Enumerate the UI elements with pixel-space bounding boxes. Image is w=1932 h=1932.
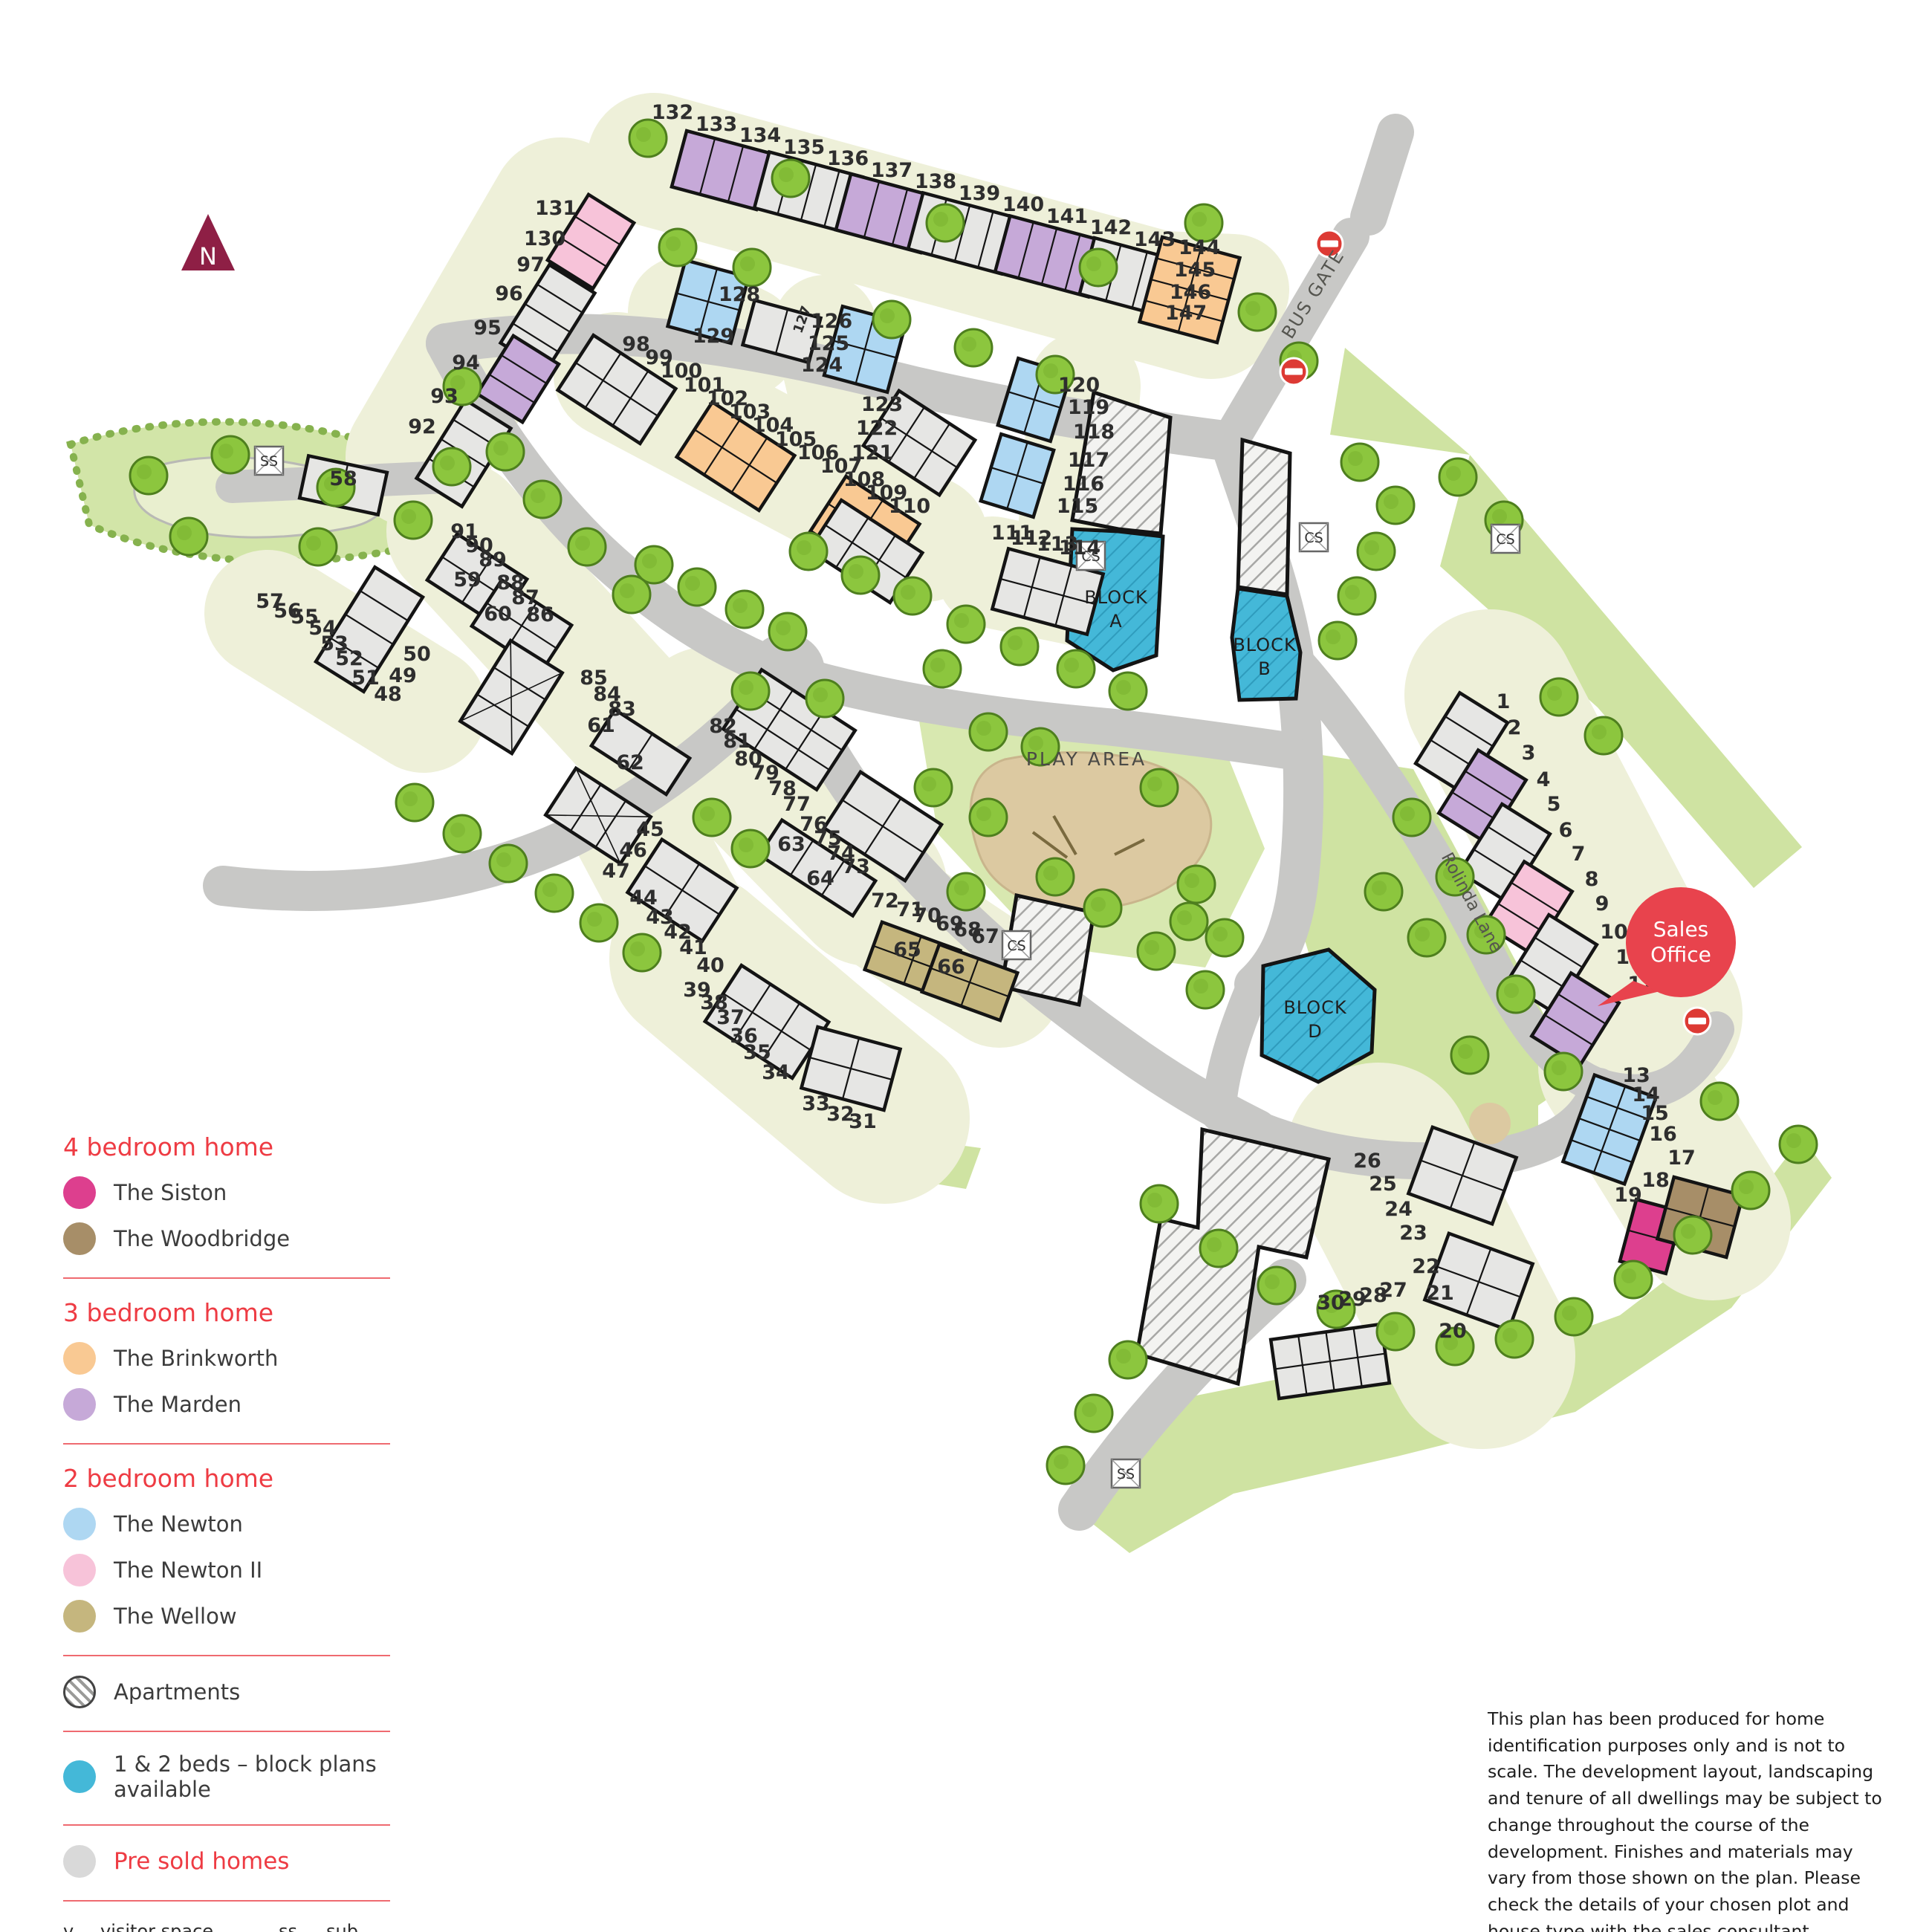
tree-icon (1547, 686, 1562, 701)
tree-icon (954, 613, 969, 628)
plot-number: 139 (959, 182, 1000, 205)
plot-number: 7 (1572, 843, 1586, 866)
legend-item-label: The Woodbridge (114, 1226, 290, 1251)
legend-swatch-icon (63, 1600, 96, 1633)
tree-icon (1082, 1402, 1097, 1417)
tree-icon (531, 488, 545, 503)
plot-number: 118 (1073, 421, 1115, 444)
plot-number: 126 (811, 310, 852, 333)
tree-icon (933, 212, 948, 227)
legend-divider (63, 1824, 390, 1826)
tree-icon (921, 777, 936, 791)
plot-number: 22 (1412, 1255, 1440, 1278)
legend-divider (63, 1443, 390, 1445)
plot-number: 17 (1667, 1147, 1696, 1170)
tree-icon (1008, 635, 1022, 650)
tree-icon (1592, 724, 1607, 739)
tree-icon (642, 554, 657, 568)
tree-icon (1207, 1237, 1222, 1252)
plot-number: 117 (1068, 449, 1109, 472)
plot-number: 34 (762, 1061, 790, 1084)
legend-item: The Wellow (63, 1600, 390, 1633)
tree-icon (1415, 927, 1430, 941)
tree-icon (1384, 494, 1398, 509)
plot-number: 145 (1174, 259, 1216, 282)
plot-number: 46 (619, 839, 647, 862)
plot-number: 64 (806, 867, 834, 890)
svg-text:SS: SS (1117, 1466, 1135, 1482)
disclaimer-text: This plan has been produced for home ide… (1488, 1706, 1884, 1932)
plot-number: 124 (801, 354, 843, 377)
legend-swatch-icon (63, 1845, 96, 1878)
plot-number: 140 (1002, 193, 1044, 216)
play-area-surface (1469, 1103, 1511, 1144)
tree-icon (1147, 1193, 1162, 1207)
cycle-store-marker: CS (1002, 931, 1031, 959)
block-label: BLOCK (1084, 587, 1148, 608)
legend-swatch-icon (63, 1222, 96, 1255)
tree-icon (1144, 940, 1159, 955)
svg-text:Sales: Sales (1653, 917, 1709, 941)
road (1369, 132, 1395, 217)
tree-icon (1372, 881, 1387, 895)
tree-icon (880, 308, 895, 323)
svg-text:CS: CS (1496, 531, 1514, 548)
plot-number: 21 (1426, 1282, 1454, 1305)
svg-text:CS: CS (1007, 938, 1025, 954)
block-label: BLOCK (1283, 997, 1347, 1018)
tree-icon (1054, 1454, 1069, 1469)
plot-number: 1 (1497, 690, 1511, 713)
plot-number: 15 (1641, 1102, 1669, 1125)
block-label: D (1308, 1021, 1322, 1042)
tree-icon (1681, 1224, 1696, 1239)
plot-number: 132 (652, 101, 693, 124)
plot-number: 115 (1057, 495, 1098, 518)
tree-icon (575, 536, 590, 551)
plot-number: 146 (1170, 281, 1211, 304)
plot-number: 136 (827, 147, 869, 170)
plot-number: 5 (1547, 793, 1561, 816)
plot-number: 72 (871, 889, 899, 912)
legend-swatch-icon (63, 1388, 96, 1421)
block-label: BLOCK (1233, 635, 1297, 655)
tree-icon (1384, 1320, 1398, 1335)
plot-number: 131 (535, 197, 577, 220)
tree-icon (1043, 866, 1058, 881)
tree-icon (1503, 1328, 1517, 1343)
tree-icon (1147, 777, 1162, 791)
tree-icon (962, 337, 976, 351)
tree-icon (496, 852, 511, 867)
plot-number: 92 (408, 415, 436, 438)
tree-icon (976, 721, 991, 736)
site-plan-page: CSCSCSCSSSSS BLOCKABLOCKBBLOCKD123456789… (0, 0, 1932, 1932)
plot-number: 94 (452, 351, 480, 375)
legend-item-apartments: Apartments (63, 1676, 390, 1708)
legend-item-label: The Marden (114, 1392, 241, 1417)
plot-number: 20 (1439, 1320, 1467, 1343)
tree-icon (1043, 363, 1058, 378)
plot-number: 45 (636, 818, 664, 841)
plot-number: 6 (1559, 819, 1573, 842)
plot-number: 143 (1134, 228, 1176, 251)
legend-divider (63, 1731, 390, 1732)
legend-section-heading: 4 bedroom home (63, 1132, 390, 1161)
plot-number: 134 (739, 124, 781, 147)
legend-abbr-cell: v (63, 1921, 100, 1932)
tree-icon (1364, 540, 1379, 555)
tree-icon (306, 536, 321, 551)
tree-icon (440, 456, 455, 470)
tree-icon (779, 167, 794, 182)
tree-icon (1326, 629, 1341, 644)
tree-icon (137, 464, 152, 479)
legend-section-heading: 2 bedroom home (63, 1464, 390, 1493)
plot-number: 47 (602, 860, 630, 883)
legend-abbr-cell: sub station (326, 1921, 390, 1932)
plot-number: 2 (1508, 716, 1522, 739)
plot-number: 130 (524, 227, 565, 250)
tree-icon (733, 598, 748, 613)
tree-icon (542, 882, 557, 897)
tree-icon (739, 680, 753, 695)
plot-number: 26 (1353, 1150, 1381, 1173)
tree-icon (1446, 466, 1461, 481)
plot-number: 3 (1522, 742, 1536, 765)
svg-text:CS: CS (1304, 530, 1323, 546)
legend-item: The Brinkworth (63, 1342, 390, 1375)
plot-number: 128 (719, 283, 760, 306)
cycle-store-marker: CS (1491, 525, 1520, 553)
plot-number: 123 (861, 393, 903, 416)
plot-number: 25 (1369, 1173, 1397, 1196)
legend-item: The Newton II (63, 1554, 390, 1586)
legend-item-label: The Siston (114, 1180, 227, 1205)
tree-icon (620, 583, 635, 598)
tree-icon (1504, 983, 1519, 998)
tree-icon (218, 444, 233, 458)
north-label: N (199, 242, 217, 270)
plot-number: 19 (1614, 1184, 1642, 1207)
plot-number: 93 (430, 385, 458, 408)
plot-number: 135 (783, 136, 825, 159)
tree-icon (813, 687, 828, 702)
plot-number: 142 (1090, 216, 1132, 239)
legend-swatch-icon (63, 1554, 96, 1586)
tree-icon (1345, 585, 1360, 600)
plot-number: 50 (403, 643, 431, 666)
legend-swatch-icon (63, 1176, 96, 1209)
tree-icon (1458, 1044, 1473, 1059)
tree-icon (403, 791, 418, 806)
plot-number: 95 (473, 317, 502, 340)
plot-number: 57 (256, 590, 284, 613)
plot-number: 144 (1179, 236, 1220, 259)
legend-swatch-icon (63, 1342, 96, 1375)
legend-item: The Marden (63, 1388, 390, 1421)
plot-number: 23 (1399, 1222, 1427, 1245)
plot-number: 62 (616, 751, 644, 774)
plot-number: 120 (1058, 374, 1100, 397)
legend-item-label: The Wellow (114, 1604, 237, 1629)
no-entry-icon (1280, 358, 1307, 385)
legend-item: The Siston (63, 1176, 390, 1209)
north-arrow: N (181, 214, 235, 270)
tree-icon (1400, 806, 1415, 821)
tree-icon (849, 564, 863, 579)
svg-text:SS: SS (260, 453, 278, 470)
legend-item: The Newton (63, 1508, 390, 1540)
plot-number: 96 (495, 282, 523, 305)
tree-icon (1348, 451, 1363, 466)
plot-number: 138 (915, 170, 956, 193)
legend-item-presold: Pre sold homes (63, 1845, 390, 1878)
tree-icon (901, 585, 915, 600)
legend-divider (63, 1277, 390, 1279)
plot-number: 71 (896, 898, 924, 921)
plot-number: 4 (1537, 768, 1551, 791)
tree-icon (1064, 658, 1079, 672)
tree-icon (1091, 897, 1106, 912)
plot-number: 65 (893, 939, 921, 962)
svg-text:Office: Office (1650, 942, 1711, 967)
tree-icon (1492, 509, 1507, 524)
plot-number: 24 (1384, 1198, 1413, 1221)
plot-number: 44 (629, 886, 658, 910)
tree-icon (776, 620, 791, 635)
plot-number: 88 (496, 571, 525, 594)
tree-icon (740, 256, 755, 271)
plot-number: 91 (450, 520, 479, 543)
plot-number: 119 (1068, 396, 1109, 419)
block-label: A (1109, 611, 1122, 632)
plot-number: 137 (871, 159, 912, 182)
legend-item-block-plans: 1 & 2 beds – block plans available (63, 1751, 390, 1802)
legend-abbreviations: vvisitor spacesssub stationcscycle store (63, 1921, 390, 1932)
legend-swatch-icon (63, 1508, 96, 1540)
legend-divider (63, 1900, 390, 1902)
green-space (1330, 348, 1470, 455)
plot-number: 141 (1046, 205, 1088, 228)
plot-number: 110 (889, 495, 930, 518)
plot-number: 59 (453, 568, 482, 591)
tree-icon (1708, 1090, 1722, 1105)
tree-icon (587, 912, 602, 927)
tree-icon (1193, 979, 1208, 993)
plot-number: 9 (1595, 892, 1610, 915)
road (1219, 985, 1254, 1115)
plot-number: 116 (1063, 473, 1104, 496)
legend-item-label: 1 & 2 beds – block plans available (114, 1751, 390, 1802)
legend-swatch-icon (63, 1676, 96, 1708)
plot-number: 63 (777, 833, 805, 856)
plot-number: 39 (683, 979, 711, 1002)
legend-item-label: The Newton II (114, 1557, 262, 1583)
tree-icon (1786, 1133, 1801, 1148)
tree-icon (1245, 301, 1260, 316)
tree-icon (493, 441, 508, 456)
legend-item-label: The Newton (114, 1511, 243, 1537)
legend-swatch-icon (63, 1760, 96, 1793)
legend: 4 bedroom homeThe SistonThe Woodbridge3 … (63, 1132, 390, 1932)
legend-abbr-cell: ss (279, 1921, 326, 1932)
plot-number: 60 (484, 603, 512, 626)
tree-icon (1562, 1306, 1577, 1320)
plot-number: 49 (389, 664, 417, 687)
plot-number: 133 (696, 113, 737, 136)
tree-icon (1621, 1268, 1636, 1283)
cycle-store-marker: CS (1300, 523, 1328, 551)
tree-icon (1213, 927, 1228, 941)
plot-number: 18 (1641, 1169, 1670, 1192)
apartments-building (1238, 440, 1290, 594)
plot-number: 58 (329, 467, 357, 490)
legend-divider (63, 1655, 390, 1656)
legend-section-heading: 3 bedroom home (63, 1298, 390, 1327)
tree-icon (930, 658, 945, 672)
tree-icon (450, 823, 465, 837)
legend-item-label: The Brinkworth (114, 1346, 278, 1371)
plot-number: 66 (937, 956, 965, 979)
tree-icon (177, 525, 192, 540)
sub-station-marker: SS (255, 447, 283, 475)
tree-icon (700, 806, 715, 821)
plot-number: 125 (808, 332, 849, 355)
plot-number: 76 (800, 813, 828, 836)
tree-icon (1116, 680, 1131, 695)
tree-icon (1086, 256, 1101, 271)
plot-number: 85 (580, 667, 608, 690)
sub-station-marker: SS (1112, 1459, 1140, 1488)
plot-number: 97 (516, 253, 545, 276)
tree-icon (1184, 873, 1199, 888)
tree-icon (636, 127, 651, 142)
no-entry-icon (1684, 1008, 1711, 1034)
tree-icon (1116, 1349, 1131, 1364)
tree-icon (1265, 1274, 1280, 1289)
tree-icon (797, 540, 811, 555)
tree-icon (1177, 910, 1192, 925)
tree-icon (401, 509, 416, 524)
plot-number: 82 (709, 715, 737, 738)
tree-icon (685, 576, 700, 591)
plot-number: 33 (802, 1092, 830, 1115)
plot-number: 147 (1165, 302, 1207, 325)
tree-icon (739, 837, 753, 852)
tree-icon (666, 236, 681, 251)
tree-icon (630, 941, 645, 956)
plot-number: 114 (1059, 537, 1100, 560)
legend-item: The Woodbridge (63, 1222, 390, 1255)
legend-item-label: Apartments (114, 1679, 240, 1705)
play-area-label: PLAY AREA (1026, 748, 1147, 770)
legend-abbr-cell: visitor space (100, 1921, 279, 1932)
plot-number: 30 (1317, 1291, 1345, 1315)
tree-icon (1192, 212, 1207, 227)
plot-number: 16 (1649, 1123, 1677, 1146)
plot-number: 121 (852, 441, 893, 464)
plot-number: 129 (693, 325, 734, 348)
plot-number: 8 (1585, 868, 1599, 891)
tree-icon (1739, 1179, 1754, 1194)
plot-number: 10 (1600, 921, 1628, 944)
tree-icon (954, 881, 969, 895)
plot-number: 32 (826, 1103, 855, 1126)
tree-icon (1552, 1060, 1566, 1075)
legend-item-label: Pre sold homes (114, 1848, 289, 1875)
tree-icon (976, 806, 991, 821)
plot-number: 122 (856, 417, 898, 440)
block-label: B (1258, 658, 1271, 679)
